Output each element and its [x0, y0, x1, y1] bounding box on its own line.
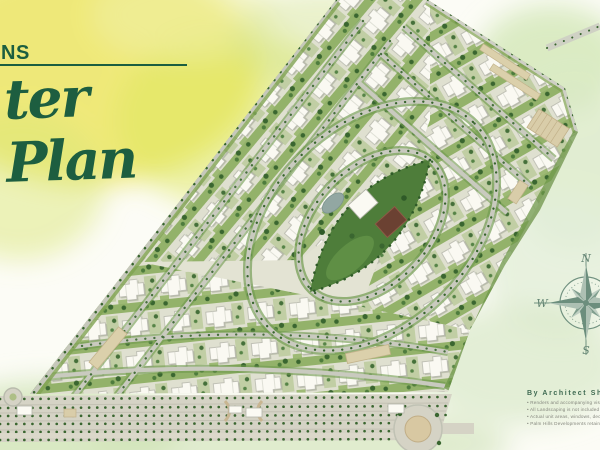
roundabout-small [4, 388, 22, 406]
south-service-road [0, 433, 438, 438]
master-plan-illustration: N S W [0, 0, 600, 450]
compass-south-label: S [582, 344, 590, 357]
architect-byline: By Architect Sheha [527, 390, 600, 397]
disclaimer-note: • Palm Hills Developments retains the ri… [527, 420, 600, 427]
disclaimer-note: • All Landscaping is not included in the… [527, 406, 600, 413]
compass-north-label: N [580, 252, 591, 265]
disclaimer-note: • Actual unit areas, windows, decks, por… [527, 413, 600, 420]
disclaimer-note: • Renders and accompanying visual mate [527, 399, 600, 406]
disclaimer-list: • Renders and accompanying visual mate •… [527, 399, 600, 427]
boulevard [0, 388, 474, 450]
compass-west-label: W [536, 297, 549, 310]
master-plan-poster: N S W NS ter Plan By Architect Sheha • R… [0, 0, 600, 450]
credits-block: By Architect Sheha • Renders and accompa… [527, 390, 600, 427]
